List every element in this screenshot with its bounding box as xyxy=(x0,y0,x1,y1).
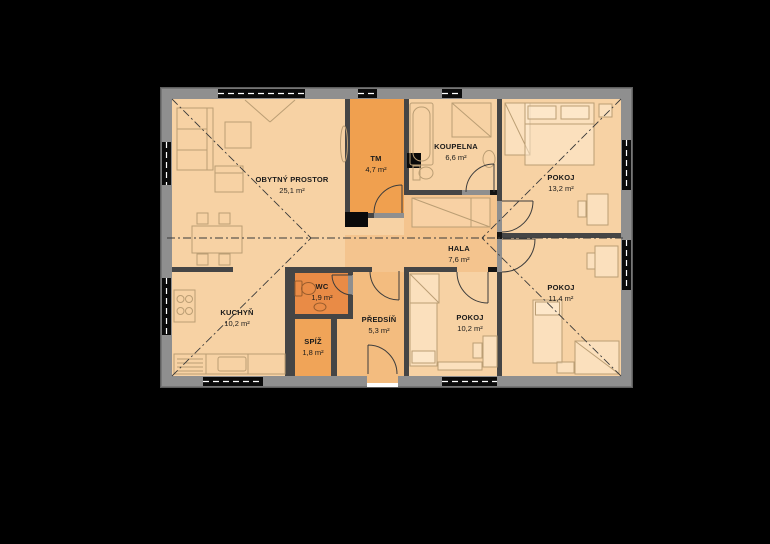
room-hala-upper xyxy=(404,195,497,235)
wall-wc-top xyxy=(290,267,352,273)
wall-hala-right-lower xyxy=(497,272,502,376)
wall-pokoj10-top-left xyxy=(409,267,457,272)
room-label-kuchyn: KUCHYŇ 10,2 m² xyxy=(220,307,253,330)
window-obytny-left xyxy=(162,142,171,185)
wall-tm-left xyxy=(345,99,350,218)
window-kuchyn-bottom xyxy=(203,377,263,386)
room-pokoj-10 xyxy=(409,272,497,376)
wall-predsin-right xyxy=(404,267,409,376)
window-pokoj11-right xyxy=(622,240,631,290)
screenshot-canvas: OBYTNÝ PROSTOR 25,1 m² TM 4,7 m² KOUPELN… xyxy=(0,0,770,544)
room-label-hala: HALA 7,6 m² xyxy=(448,243,470,266)
room-name: KOUPELNA xyxy=(434,141,478,152)
room-name: POKOJ xyxy=(547,172,574,183)
floor-plan: OBYTNÝ PROSTOR 25,1 m² TM 4,7 m² KOUPELN… xyxy=(161,88,632,387)
room-pokoj-11 xyxy=(502,238,621,376)
wall-spiz-right xyxy=(331,319,337,376)
room-area: 6,6 m² xyxy=(434,152,478,163)
room-name: PŘEDSÍŇ xyxy=(362,314,397,325)
room-predsin-lower xyxy=(337,319,353,376)
wall-predsin-top xyxy=(353,267,372,272)
room-label-wc: WC 1,9 m² xyxy=(311,281,332,304)
room-name: HALA xyxy=(448,243,470,254)
room-area: 5,3 m² xyxy=(362,325,397,336)
wall-kuchyn-right xyxy=(285,267,295,376)
room-label-pokoj-13: POKOJ 13,2 m² xyxy=(547,172,574,195)
room-area: 10,2 m² xyxy=(220,318,253,329)
shaft-block-tm xyxy=(345,212,368,227)
room-area: 1,9 m² xyxy=(311,292,332,303)
room-name: SPÍŽ xyxy=(302,336,323,347)
shaft-block-koupelna xyxy=(407,153,421,168)
entrance-threshold xyxy=(367,383,398,387)
window-pokoj13-right xyxy=(622,140,631,190)
room-label-koupelna: KOUPELNA 6,6 m² xyxy=(434,141,478,164)
room-area: 25,1 m² xyxy=(255,185,328,196)
room-area: 13,2 m² xyxy=(547,183,574,194)
wall-pokoj13-bottom xyxy=(502,233,621,238)
wall-hala-right-upper xyxy=(497,99,502,201)
room-label-spiz: SPÍŽ 1,8 m² xyxy=(302,336,323,359)
window-obytny-top xyxy=(218,89,305,98)
wall-koupelna-bottom xyxy=(409,190,462,195)
room-label-pokoj-11: POKOJ 11,4 m² xyxy=(547,282,574,305)
room-name: POKOJ xyxy=(456,312,483,323)
room-area: 4,7 m² xyxy=(365,164,386,175)
wall-koupelna-jamb xyxy=(490,190,497,195)
window-kuchyn-left xyxy=(162,278,171,335)
wall-pokoj10-top-right xyxy=(488,267,497,272)
room-area: 10,2 m² xyxy=(456,323,483,334)
room-label-pokoj-10: POKOJ 10,2 m² xyxy=(456,312,483,335)
room-label-obytny-prostor: OBYTNÝ PROSTOR 25,1 m² xyxy=(255,174,328,197)
room-area: 11,4 m² xyxy=(547,293,574,304)
room-name: WC xyxy=(311,281,332,292)
room-name: OBYTNÝ PROSTOR xyxy=(255,174,328,185)
wall-wc-spiz xyxy=(290,314,353,319)
room-name: KUCHYŇ xyxy=(220,307,253,318)
window-koupelna-top xyxy=(442,89,462,98)
room-name: TM xyxy=(365,153,386,164)
window-pokoj10-bottom xyxy=(442,377,497,386)
room-label-predsin: PŘEDSÍŇ 5,3 m² xyxy=(362,314,397,337)
room-name: POKOJ xyxy=(547,282,574,293)
window-tm-top xyxy=(358,89,377,98)
wall-tm-right xyxy=(404,99,409,195)
room-area: 1,8 m² xyxy=(302,347,323,358)
room-area: 7,6 m² xyxy=(448,254,470,265)
room-pokoj-13 xyxy=(502,99,621,233)
room-label-tm: TM 4,7 m² xyxy=(365,153,386,176)
wall-kuchyn-top xyxy=(172,267,233,272)
